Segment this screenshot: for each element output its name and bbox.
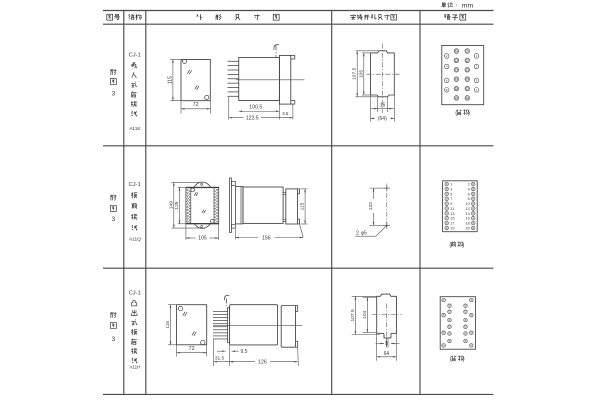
svg-text:A11H: A11H <box>129 365 140 370</box>
svg-text:(: ( <box>450 357 452 363</box>
svg-text:64: 64 <box>384 351 390 357</box>
svg-text:CJ-1: CJ-1 <box>129 182 141 188</box>
svg-text:8: 8 <box>468 197 470 201</box>
svg-text:13: 13 <box>450 212 454 216</box>
svg-text:105: 105 <box>358 70 364 78</box>
svg-text:(: ( <box>455 111 457 117</box>
svg-text:9: 9 <box>450 202 452 206</box>
svg-text:107.5: 107.5 <box>350 309 356 322</box>
svg-text:7: 7 <box>450 197 452 201</box>
svg-text:11: 11 <box>450 207 454 211</box>
svg-text:107.5: 107.5 <box>352 67 358 80</box>
svg-text:9.5: 9.5 <box>241 349 248 355</box>
svg-text:2: 2 <box>446 54 448 58</box>
svg-text:156: 156 <box>262 235 271 241</box>
svg-text:19: 19 <box>450 226 454 230</box>
svg-text:17: 17 <box>450 222 454 226</box>
svg-text:15: 15 <box>450 217 454 221</box>
svg-text:72: 72 <box>189 346 195 352</box>
svg-text:20: 20 <box>465 226 469 230</box>
svg-text:105: 105 <box>198 235 207 241</box>
svg-text:mm: mm <box>462 3 474 10</box>
svg-text:3.5: 3.5 <box>282 111 289 116</box>
svg-text:1: 1 <box>450 183 452 187</box>
svg-text:16: 16 <box>380 103 386 109</box>
svg-text:5: 5 <box>476 79 478 83</box>
svg-text:φ5: φ5 <box>361 230 367 236</box>
svg-text:18: 18 <box>465 222 469 226</box>
svg-text:31.5: 31.5 <box>215 356 225 362</box>
svg-text:): ) <box>468 111 470 117</box>
svg-text:100.5: 100.5 <box>249 105 262 111</box>
svg-text:126: 126 <box>258 360 267 366</box>
svg-text:(64): (64) <box>378 116 387 122</box>
svg-text:7: 7 <box>476 88 478 92</box>
svg-text:122.5: 122.5 <box>246 115 259 121</box>
svg-text:A11K: A11K <box>129 126 141 132</box>
svg-text:14: 14 <box>465 212 469 216</box>
svg-text:4: 4 <box>446 65 448 69</box>
svg-text:12: 12 <box>465 207 469 211</box>
svg-text:16: 16 <box>384 341 388 345</box>
svg-text:133: 133 <box>368 202 374 210</box>
svg-text:CJ-1: CJ-1 <box>129 290 141 296</box>
svg-text:10: 10 <box>465 202 469 206</box>
svg-text:115: 115 <box>167 76 173 84</box>
svg-text:6: 6 <box>468 192 470 196</box>
svg-text:3: 3 <box>112 216 116 223</box>
svg-text:8: 8 <box>446 88 448 92</box>
svg-text:16: 16 <box>465 217 469 221</box>
svg-text:2: 2 <box>468 183 470 187</box>
svg-text:149: 149 <box>168 201 174 209</box>
svg-text:): ) <box>463 357 465 363</box>
svg-text:115: 115 <box>165 321 171 329</box>
svg-text:125: 125 <box>174 201 180 209</box>
svg-text:3: 3 <box>112 91 116 98</box>
svg-text:6: 6 <box>446 79 448 83</box>
svg-text:A11Q: A11Q <box>129 236 141 242</box>
svg-text:3: 3 <box>476 65 478 69</box>
svg-text:115: 115 <box>300 202 306 210</box>
svg-text:3: 3 <box>112 336 116 343</box>
svg-text:3: 3 <box>450 187 452 191</box>
svg-text:): ) <box>462 243 464 249</box>
svg-text:CJ-1: CJ-1 <box>129 53 141 59</box>
svg-text:1: 1 <box>476 54 478 58</box>
svg-text:5: 5 <box>450 192 452 196</box>
svg-text:(: ( <box>449 243 451 249</box>
svg-text:2: 2 <box>356 230 359 236</box>
svg-text:104: 104 <box>362 310 368 318</box>
svg-text:4: 4 <box>468 187 470 191</box>
svg-text:72: 72 <box>193 102 199 108</box>
